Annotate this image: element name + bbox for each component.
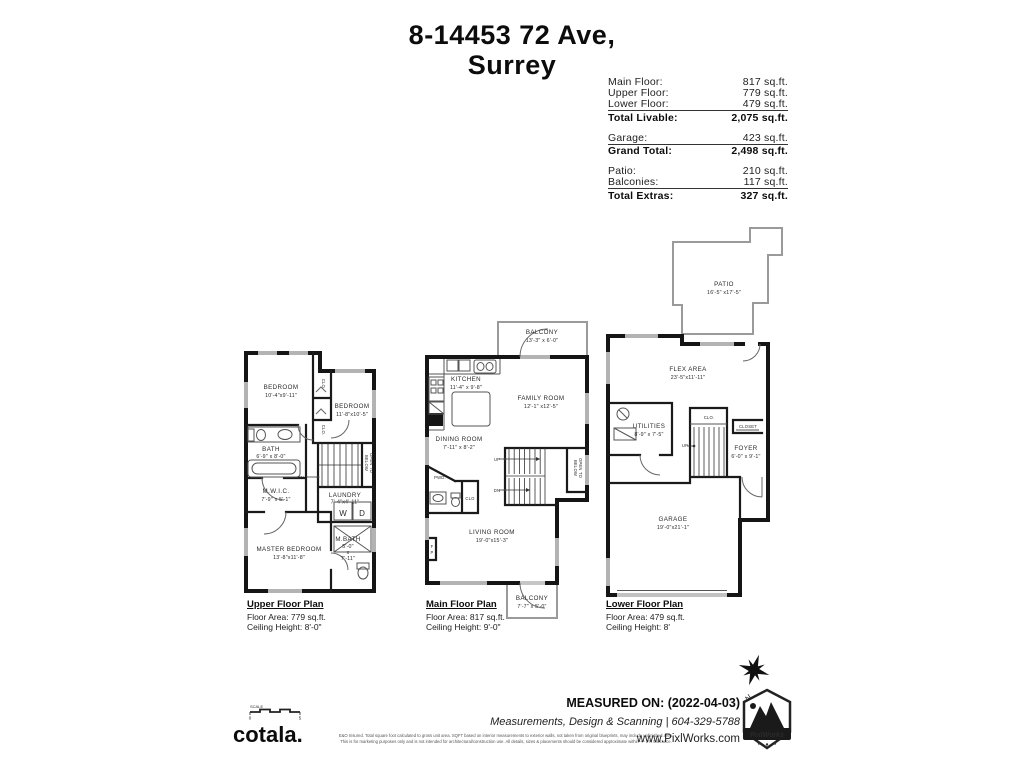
pwd-fixtures — [430, 492, 460, 507]
scale-end: 5 — [299, 716, 302, 721]
services-line: Measurements, Design & Scanning | 604-32… — [490, 716, 740, 728]
room-label: DINING ROOM — [435, 436, 482, 443]
fireplace-label: F — [431, 544, 434, 549]
upper-plan-caption: Upper Floor Plan Floor Area: 779 sq.ft. … — [247, 600, 326, 633]
open-to-below-label: BELOW — [573, 460, 578, 476]
room-dims: 7'-4"x4'-11" — [331, 500, 360, 506]
closet-label: CLO. — [704, 415, 715, 420]
stat-label: Main Floor: — [608, 77, 663, 87]
room-label: BATH — [262, 446, 280, 453]
room-dims: 7'-7" x 5'-0" — [517, 604, 546, 610]
stat-total-label: Total Extras: — [608, 191, 673, 201]
room-label: BEDROOM — [335, 403, 370, 410]
floorplan-sheet: 8-14453 72 Ave, Surrey Main Floor:817 sq… — [0, 0, 1024, 768]
pwd-label: PWD. — [434, 475, 446, 480]
room-dims: 12'-1" x12'-5" — [524, 404, 558, 410]
room-label: BEDROOM — [264, 384, 299, 391]
room-label: MASTER BEDROOM — [256, 546, 321, 553]
open-to-below-label: BELOW — [364, 455, 369, 471]
room-label: KITCHEN — [451, 376, 481, 383]
sink-icon — [433, 495, 443, 502]
stat-total-value: 2,075 sq.ft. — [731, 113, 788, 123]
badge-label: PixlWorks — [750, 732, 784, 739]
fireplace-label: P — [431, 550, 434, 555]
plan-area: Floor Area: 779 sq.ft. — [247, 612, 326, 623]
stat-value: 479 sq.ft. — [743, 99, 788, 109]
dn-label: DN — [298, 475, 304, 480]
stat-value: 817 sq.ft. — [743, 77, 788, 87]
room-label: BALCONY — [516, 595, 548, 602]
closet-label: CLO — [465, 496, 475, 501]
room-dims: 6'-0" x 9'-1" — [731, 454, 760, 460]
room-dims: 13'-3" x 6'-0" — [526, 338, 558, 344]
room-label: M.BATH — [335, 536, 360, 543]
stat-value: 423 sq.ft. — [743, 133, 788, 143]
lower-floor-plan: PATIO 16'-5" x17'-5" FLEX AREA 23'-5"x11… — [603, 223, 795, 603]
room-dims: 23'-5"x11'-11" — [671, 375, 706, 381]
toilet-icon — [357, 563, 369, 569]
area-statistics: Main Floor:817 sq.ft. Upper Floor:779 sq… — [608, 77, 788, 211]
room-dims: 7'-11" x 8'-2" — [443, 445, 475, 451]
upper-floor-plan: BEDROOM 10'-4"x9'-11" BEDROOM 11'-8"x10'… — [243, 346, 379, 598]
room-dims: 11'-4" x 9'-8" — [450, 385, 482, 391]
washer-label: W — [339, 509, 347, 518]
stats-group-grand: Garage:423 sq.ft. Grand Total:2,498 sq.f… — [608, 133, 788, 158]
dn-label: DN — [494, 488, 500, 493]
stat-value: 210 sq.ft. — [743, 166, 788, 176]
stat-value: 779 sq.ft. — [743, 88, 788, 98]
room-label: M.W.I.C. — [263, 488, 290, 495]
vanity-icon — [430, 492, 446, 504]
room-label: LIVING ROOM — [469, 529, 515, 536]
plan-ceiling: Ceiling Height: 8'-0" — [247, 622, 326, 633]
plan-area: Floor Area: 479 sq.ft. — [606, 612, 685, 623]
room-label: FAMILY ROOM — [518, 395, 565, 402]
plan-ceiling: Ceiling Height: 8' — [606, 622, 685, 633]
address-line: 8-14453 72 Ave, — [0, 20, 1024, 50]
room-label: PATIO — [714, 281, 734, 288]
closet-label: CLOSET — [739, 424, 757, 429]
cotala-logo: cotala. — [233, 722, 303, 748]
stat-total-value: 2,498 sq.ft. — [731, 146, 788, 156]
dryer-label: D — [359, 509, 365, 518]
room-dims: 19'-0"x21'-1" — [657, 525, 689, 531]
stat-label: Upper Floor: — [608, 88, 669, 98]
stat-total-value: 327 sq.ft. — [740, 191, 788, 201]
room-dims: 16'-5" x17'-5" — [707, 290, 741, 296]
plan-title: Lower Floor Plan — [606, 600, 685, 611]
closet-label: CLO. — [321, 425, 326, 436]
stats-group-livable: Main Floor:817 sq.ft. Upper Floor:779 sq… — [608, 77, 788, 124]
plan-title: Upper Floor Plan — [247, 600, 326, 611]
room-dims: 10'-4"x9'-11" — [265, 393, 297, 399]
plan-ceiling: Ceiling Height: 9'-0" — [426, 622, 505, 633]
city-line: Surrey — [0, 50, 1024, 80]
upper-room-labels: BEDROOM 10'-4"x9'-11" BEDROOM 11'-8"x10'… — [256, 379, 374, 562]
room-label: UTILITIES — [633, 423, 665, 430]
stat-label: Lower Floor: — [608, 99, 669, 109]
room-dims: 19'-0"x15'-3" — [476, 538, 508, 544]
room-dims: 7'-9" x 5'-1" — [261, 497, 290, 503]
room-label: LAUNDRY — [329, 492, 361, 499]
sink-icon — [278, 430, 292, 440]
page-title: 8-14453 72 Ave, Surrey — [0, 20, 1024, 80]
toilet-icon — [248, 429, 254, 441]
room-label: GARAGE — [659, 516, 688, 523]
room-dims: 8'-9" x 7'-5" — [634, 432, 663, 438]
pixlworks-badge-icon: PixlWorks — [740, 688, 794, 760]
room-dims: 7'-11" — [341, 556, 355, 562]
scale-start: 0 — [249, 716, 252, 721]
stats-group-extras: Patio:210 sq.ft. Balconies:117 sq.ft. To… — [608, 166, 788, 202]
plan-title: Main Floor Plan — [426, 600, 505, 611]
scale-bar: SCALE 0 5 — [246, 703, 308, 721]
stat-value: 117 sq.ft. — [744, 177, 788, 187]
stat-total-label: Grand Total: — [608, 146, 672, 156]
room-label: FOYER — [734, 445, 757, 452]
measured-on-date: MEASURED ON: (2022-04-03) — [566, 696, 740, 710]
room-dims: 6'-9" x 8'-0" — [256, 454, 285, 460]
main-plan-caption: Main Floor Plan Floor Area: 817 sq.ft. C… — [426, 600, 505, 633]
room-dims: 13'-8"x11'-8" — [273, 555, 305, 561]
upper-stairs — [306, 443, 362, 487]
website-link[interactable]: www.PixlWorks.com — [637, 733, 740, 745]
up-label: UP — [494, 457, 500, 462]
room-label: FLEX AREA — [669, 366, 707, 373]
scale-label: SCALE — [250, 704, 263, 709]
plan-area: Floor Area: 817 sq.ft. — [426, 612, 505, 623]
stove-icon — [459, 360, 470, 371]
stat-label: Patio: — [608, 166, 636, 176]
lower-plan-caption: Lower Floor Plan Floor Area: 479 sq.ft. … — [606, 600, 685, 633]
stat-label: Balconies: — [608, 177, 658, 187]
up-label: UP — [682, 443, 688, 448]
stove-icon — [447, 360, 458, 371]
closet-label: CLO. — [321, 379, 326, 390]
kitchen-island — [452, 392, 490, 426]
main-floor-plan: BALCONY 13'-3" x 6'-0" KITCHEN 11'-4" x … — [425, 318, 590, 620]
stat-total-label: Total Livable: — [608, 113, 678, 123]
stat-label: Garage: — [608, 133, 647, 143]
room-label: BALCONY — [526, 329, 558, 336]
toilet-icon — [257, 430, 266, 441]
room-dims: 11'-8"x10'-5" — [336, 412, 368, 418]
